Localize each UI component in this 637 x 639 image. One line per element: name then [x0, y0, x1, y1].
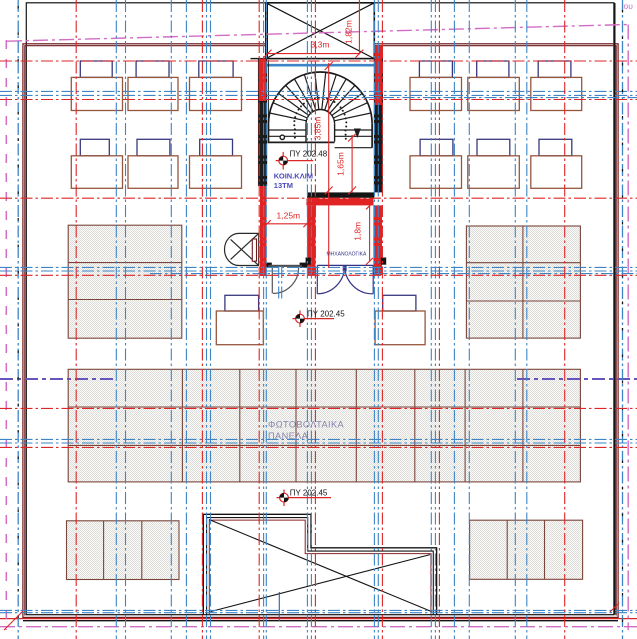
svg-text:ΜΗΧΑΝΟΛΟΓΙΚΑ: ΜΗΧΑΝΟΛΟΓΙΚΑ: [327, 252, 367, 258]
svg-text:ΠΑΝΕΛΑ: ΠΑΝΕΛΑ: [268, 431, 309, 441]
svg-text:13ΤΜ: 13ΤΜ: [274, 181, 293, 190]
svg-text:1,25m: 1,25m: [277, 211, 301, 221]
svg-text:ΠΥ 202.45: ΠΥ 202.45: [307, 310, 345, 319]
svg-text:3,3m: 3,3m: [311, 40, 330, 50]
svg-text:ΚΟΙΝ.ΚΛΙΜ: ΚΟΙΝ.ΚΛΙΜ: [274, 172, 313, 181]
svg-text:1,82m: 1,82m: [344, 20, 354, 44]
svg-text:3,85m: 3,85m: [312, 117, 322, 141]
svg-text:ΠΥ 202.45: ΠΥ 202.45: [290, 488, 328, 497]
svg-text:1,8m: 1,8m: [353, 222, 363, 241]
svg-text:1,65m: 1,65m: [335, 152, 345, 176]
svg-text:ΠΥ 202.48: ΠΥ 202.48: [290, 149, 328, 158]
svg-text:ΦΩΤΟΒΟΛΤΑΙΚΑ: ΦΩΤΟΒΟΛΤΑΙΚΑ: [268, 420, 344, 430]
svg-text:ου: ου: [624, 1, 634, 11]
